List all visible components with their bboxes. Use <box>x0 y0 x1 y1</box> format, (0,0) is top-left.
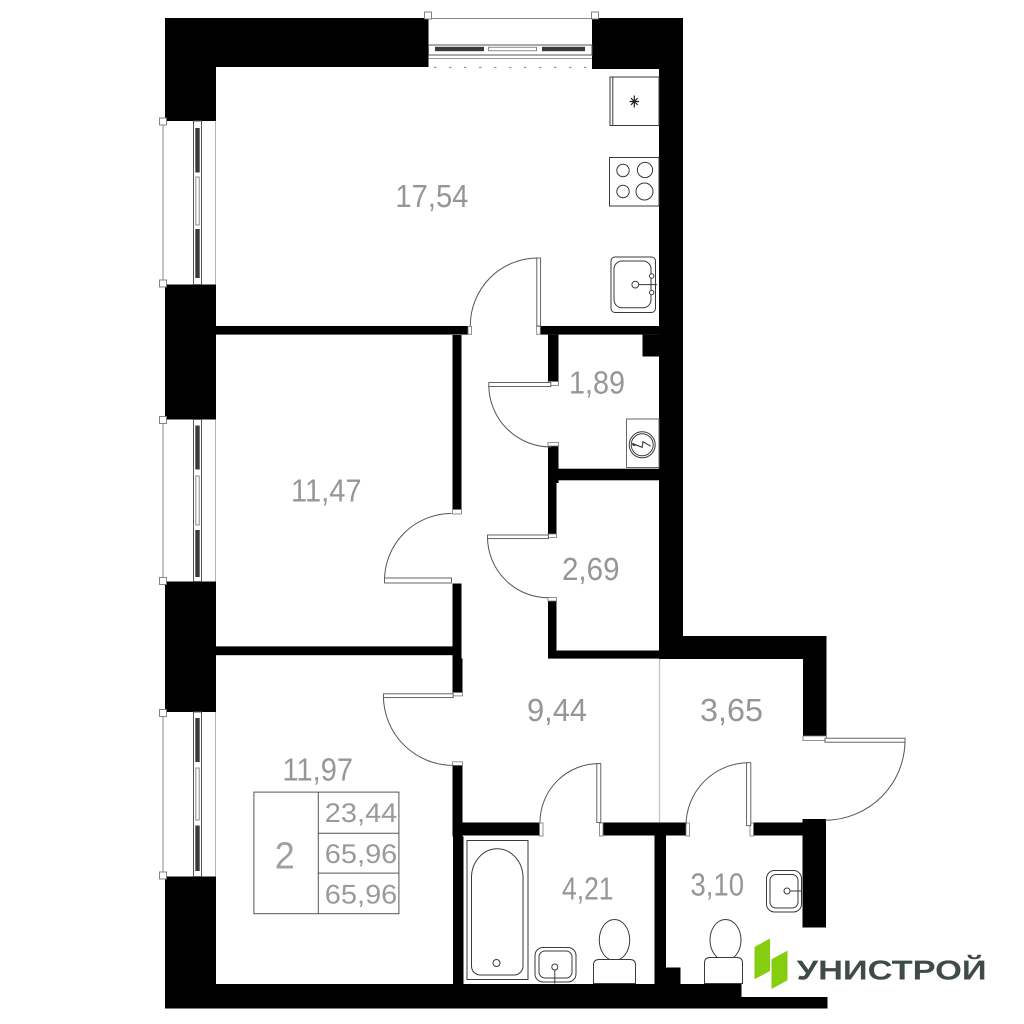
svg-text:3,10: 3,10 <box>691 867 745 903</box>
svg-text:9,44: 9,44 <box>527 692 587 728</box>
svg-text:УНИСТРОЙ: УНИСТРОЙ <box>797 954 987 985</box>
svg-text:65,96: 65,96 <box>325 880 398 910</box>
svg-text:2,69: 2,69 <box>562 551 620 587</box>
svg-text:23,44: 23,44 <box>325 798 398 828</box>
svg-text:65,96: 65,96 <box>325 839 398 869</box>
svg-text:4,21: 4,21 <box>562 871 614 907</box>
svg-text:11,97: 11,97 <box>283 752 354 788</box>
svg-text:17,54: 17,54 <box>395 178 468 214</box>
svg-text:3,65: 3,65 <box>700 692 763 728</box>
svg-text:11,47: 11,47 <box>291 473 362 509</box>
svg-text:1,89: 1,89 <box>569 365 625 401</box>
svg-text:2: 2 <box>275 836 295 878</box>
